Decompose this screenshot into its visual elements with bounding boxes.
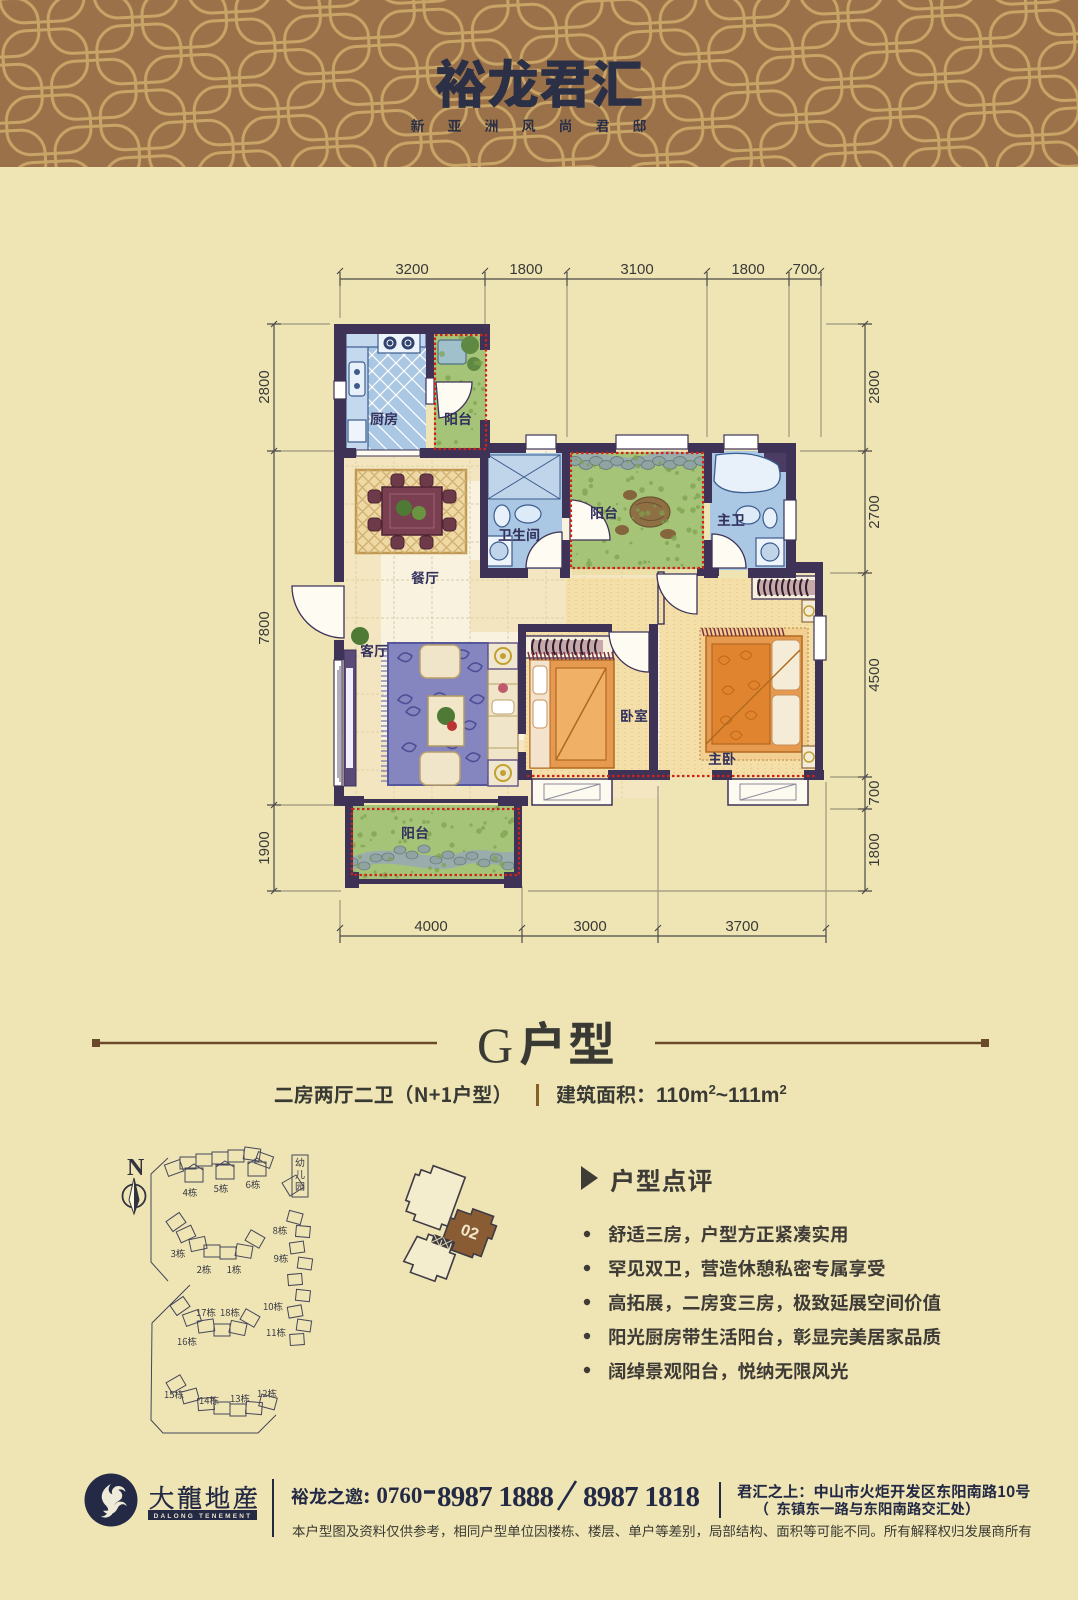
svg-text:700: 700 xyxy=(792,261,817,278)
svg-text:1800: 1800 xyxy=(731,261,764,278)
svg-text:3200: 3200 xyxy=(395,261,428,278)
svg-text:7800: 7800 xyxy=(256,611,273,644)
svg-text:1900: 1900 xyxy=(256,831,273,864)
svg-text:3700: 3700 xyxy=(725,918,758,935)
svg-text:3000: 3000 xyxy=(573,918,606,935)
svg-text:1800: 1800 xyxy=(509,261,542,278)
svg-text:2800: 2800 xyxy=(256,370,273,403)
svg-text:110m2~111m2: 110m2~111m2 xyxy=(656,1082,787,1107)
svg-text:2700: 2700 xyxy=(866,495,883,528)
svg-text:G: G xyxy=(477,1017,513,1073)
svg-text:4500: 4500 xyxy=(866,658,883,691)
svg-text:: 0760: : 0760 xyxy=(363,1483,422,1508)
svg-text:8987 1818: 8987 1818 xyxy=(583,1481,700,1513)
svg-text:700: 700 xyxy=(866,780,883,805)
svg-text:1800: 1800 xyxy=(866,833,883,866)
svg-text:3100: 3100 xyxy=(620,261,653,278)
svg-text:N: N xyxy=(127,1155,145,1181)
svg-text:4000: 4000 xyxy=(414,918,447,935)
svg-text:DALONG TENEMENT: DALONG TENEMENT xyxy=(154,1513,253,1520)
svg-text:8987 1888: 8987 1888 xyxy=(437,1481,554,1513)
svg-text:2800: 2800 xyxy=(866,370,883,403)
